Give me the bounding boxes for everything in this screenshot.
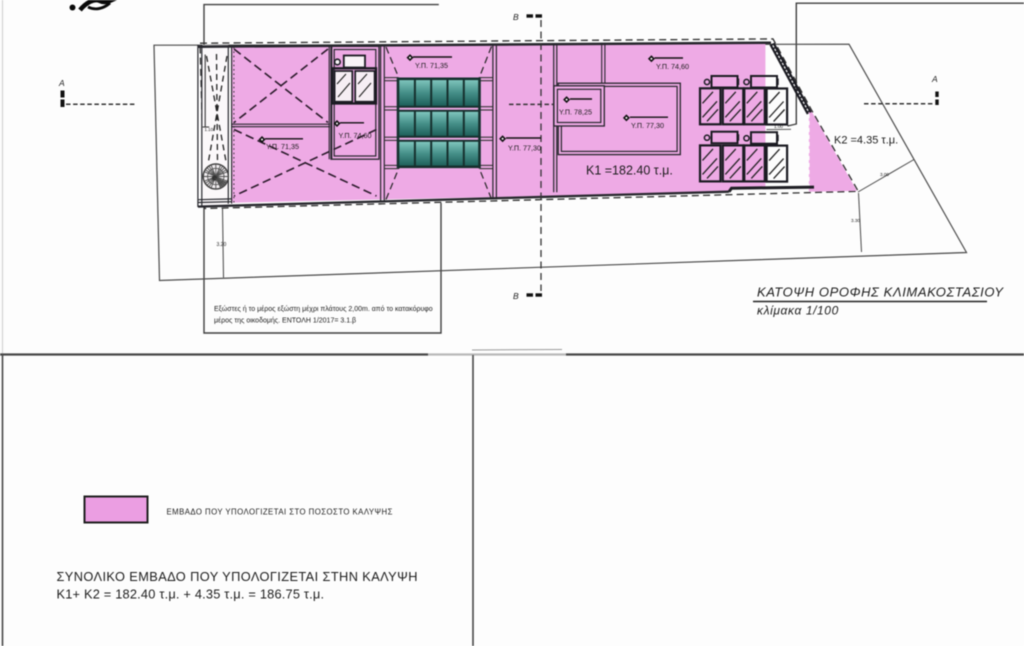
svg-text:ΕΜΒΑΔΟ ΠΟΥ ΥΠΟΛΟΓΙΖΕΤΑΙ ΣΤΟ Π: ΕΜΒΑΔΟ ΠΟΥ ΥΠΟΛΟΓΙΖΕΤΑΙ ΣΤΟ ΠΟΣΟΣΤΟ ΚΑΛΥ… xyxy=(167,508,393,517)
svg-text:3.30: 3.30 xyxy=(851,218,860,223)
svg-text:Εξώστες ή το μέρος εξώστη μέχρ: Εξώστες ή το μέρος εξώστη μέχρι πλάτους … xyxy=(214,305,433,313)
svg-text:Υ.Π. 77,30: Υ.Π. 77,30 xyxy=(508,144,541,153)
svg-text:Υ.Π. 78,25: Υ.Π. 78,25 xyxy=(559,108,592,117)
svg-text:1.10: 1.10 xyxy=(205,127,214,132)
svg-text:Υ.Π. 74,60: Υ.Π. 74,60 xyxy=(656,62,689,71)
svg-text:K1 =182.40 τ.μ.: K1 =182.40 τ.μ. xyxy=(586,164,673,178)
svg-text:A: A xyxy=(58,78,65,88)
svg-text:Υ.Π. 74,60: Υ.Π. 74,60 xyxy=(339,131,372,140)
svg-text:μέρος της οικοδομής. ΕΝΤΟΛΗ 1: μέρος της οικοδομής. ΕΝΤΟΛΗ 1/2017= 3.1.… xyxy=(214,317,356,325)
svg-text:K1+ K2 = 182.40 τ.μ. + 4.35 τ.: K1+ K2 = 182.40 τ.μ. + 4.35 τ.μ. = 186.7… xyxy=(57,587,325,602)
svg-text:B: B xyxy=(513,12,519,22)
svg-text:ΚΑΤΟΨΗ ΟΡΟΦΗΣ ΚΛΙΜΑΚΟΣΤΑΣΙΟΥ: ΚΑΤΟΨΗ ΟΡΟΦΗΣ ΚΛΙΜΑΚΟΣΤΑΣΙΟΥ xyxy=(757,285,1004,300)
svg-text:3.20: 3.20 xyxy=(217,242,227,248)
svg-text:Υ.Π. 71,35: Υ.Π. 71,35 xyxy=(266,142,299,151)
svg-text:Υ.Π. 71,35: Υ.Π. 71,35 xyxy=(415,61,448,70)
svg-text:Υ.Π. 77,30: Υ.Π. 77,30 xyxy=(631,121,664,130)
svg-text:B: B xyxy=(513,291,519,301)
svg-text:κλίμακα 1/100: κλίμακα 1/100 xyxy=(757,304,839,318)
svg-text:ΣΥΝΟΛΙΚΟ ΕΜΒΑΔΟ ΠΟΥ ΥΠΟΛΟΓΙΖΕΤ: ΣΥΝΟΛΙΚΟ ΕΜΒΑΔΟ ΠΟΥ ΥΠΟΛΟΓΙΖΕΤΑΙ ΣΤΗΝ ΚΑ… xyxy=(57,569,418,584)
svg-text:3.00: 3.00 xyxy=(880,172,889,177)
svg-text:1.00: 1.00 xyxy=(774,124,783,129)
svg-text:A: A xyxy=(931,74,938,84)
svg-text:K2 =4.35 τ.μ.: K2 =4.35 τ.μ. xyxy=(834,135,898,147)
